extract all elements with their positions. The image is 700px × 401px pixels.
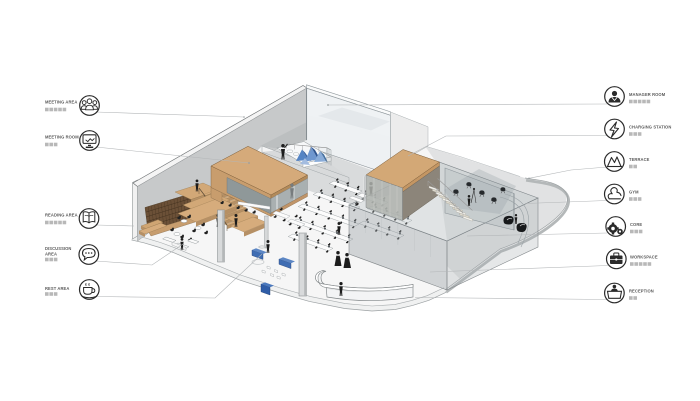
svg-text:CHARGING STATION: CHARGING STATION xyxy=(629,125,671,130)
svg-text:TERRACE: TERRACE xyxy=(629,157,650,162)
svg-text:MEETING ROOM: MEETING ROOM xyxy=(45,135,79,140)
svg-text:WORKSPACE: WORKSPACE xyxy=(630,255,658,260)
svg-text:MANAGER ROOM: MANAGER ROOM xyxy=(629,92,666,97)
svg-text:DISCUSSION: DISCUSSION xyxy=(45,246,71,251)
svg-text:AREA: AREA xyxy=(45,252,57,257)
svg-text:MEETING AREA: MEETING AREA xyxy=(45,100,77,105)
svg-text:REST AREA: REST AREA xyxy=(45,286,69,291)
svg-text:RECEPTION: RECEPTION xyxy=(629,289,654,294)
svg-text:CORE: CORE xyxy=(630,222,642,227)
svg-text:READING AREA: READING AREA xyxy=(45,213,78,218)
svg-text:GYM: GYM xyxy=(629,190,639,195)
